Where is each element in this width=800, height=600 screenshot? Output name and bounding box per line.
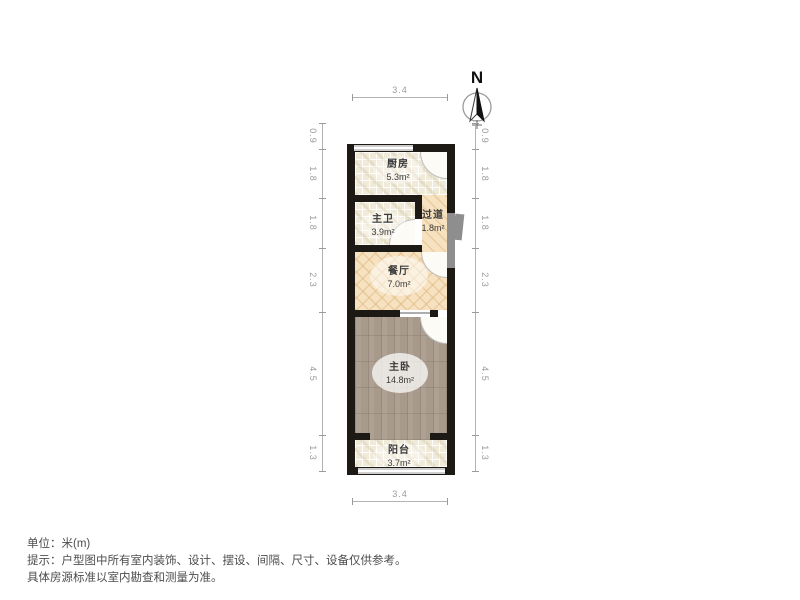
dim-right-4: 4.5 xyxy=(480,366,490,382)
dim-line-left xyxy=(322,123,323,472)
dim-line-right xyxy=(475,123,476,472)
tip-note-line1: 提示：户型图中所有室内装饰、设计、摆设、间隔、尺寸、设备仅供参考。 xyxy=(27,553,407,570)
tip-note-line2: 具体房源标准以室内勘查和测量为准。 xyxy=(27,570,407,587)
entry-door-leaf xyxy=(453,214,465,241)
dim-right-1: 1.8 xyxy=(480,166,490,182)
dim-right-3: 2.3 xyxy=(480,272,490,288)
dim-line-top xyxy=(352,97,448,98)
dining-bedroom-partition xyxy=(400,312,430,314)
wall-bathroom-bottom xyxy=(347,245,420,252)
dim-left-1: 1.8 xyxy=(308,166,318,182)
floor-plan: 厨房5.3m² 主卫3.9m² 过道1.8m² 餐厅7.0m² 主卧14.8m²… xyxy=(347,144,455,475)
unit-note: 单位：米(m) xyxy=(27,536,407,553)
bedroom-label: 主卧14.8m² xyxy=(386,361,414,387)
kitchen-window xyxy=(354,145,413,151)
dim-right-2: 1.8 xyxy=(480,215,490,231)
dim-line-bottom xyxy=(352,501,448,502)
dim-left-5: 1.3 xyxy=(308,445,318,461)
bathroom-label: 主卫3.9m² xyxy=(371,213,394,239)
dim-right-5: 1.3 xyxy=(480,445,490,461)
dim-left-4: 4.5 xyxy=(308,366,318,382)
hallway-label: 过道1.8m² xyxy=(421,209,444,235)
footer-notes: 单位：米(m) 提示：户型图中所有室内装饰、设计、摆设、间隔、尺寸、设备仅供参考… xyxy=(27,536,407,587)
dim-left-3: 2.3 xyxy=(308,272,318,288)
wall-kitchen-bottom xyxy=(347,195,422,202)
wall-dining-bedroom xyxy=(347,310,400,317)
dim-left-0: 0.9 xyxy=(308,128,318,144)
dining-label: 餐厅7.0m² xyxy=(387,265,410,291)
dim-right-0: 0.9 xyxy=(480,128,490,144)
dim-top-value: 3.4 xyxy=(392,85,408,95)
wall-bedroom-balcony-right xyxy=(430,433,455,440)
compass-icon xyxy=(455,85,499,137)
wall-bedroom-door-post xyxy=(430,310,438,317)
kitchen-label: 厨房5.3m² xyxy=(386,158,409,184)
dim-bottom-value: 3.4 xyxy=(392,489,408,499)
wall-bedroom-balcony-left xyxy=(347,433,370,440)
wall-right xyxy=(447,144,455,475)
balcony-label: 阳台3.7m² xyxy=(387,444,410,470)
dim-left-2: 1.8 xyxy=(308,215,318,231)
